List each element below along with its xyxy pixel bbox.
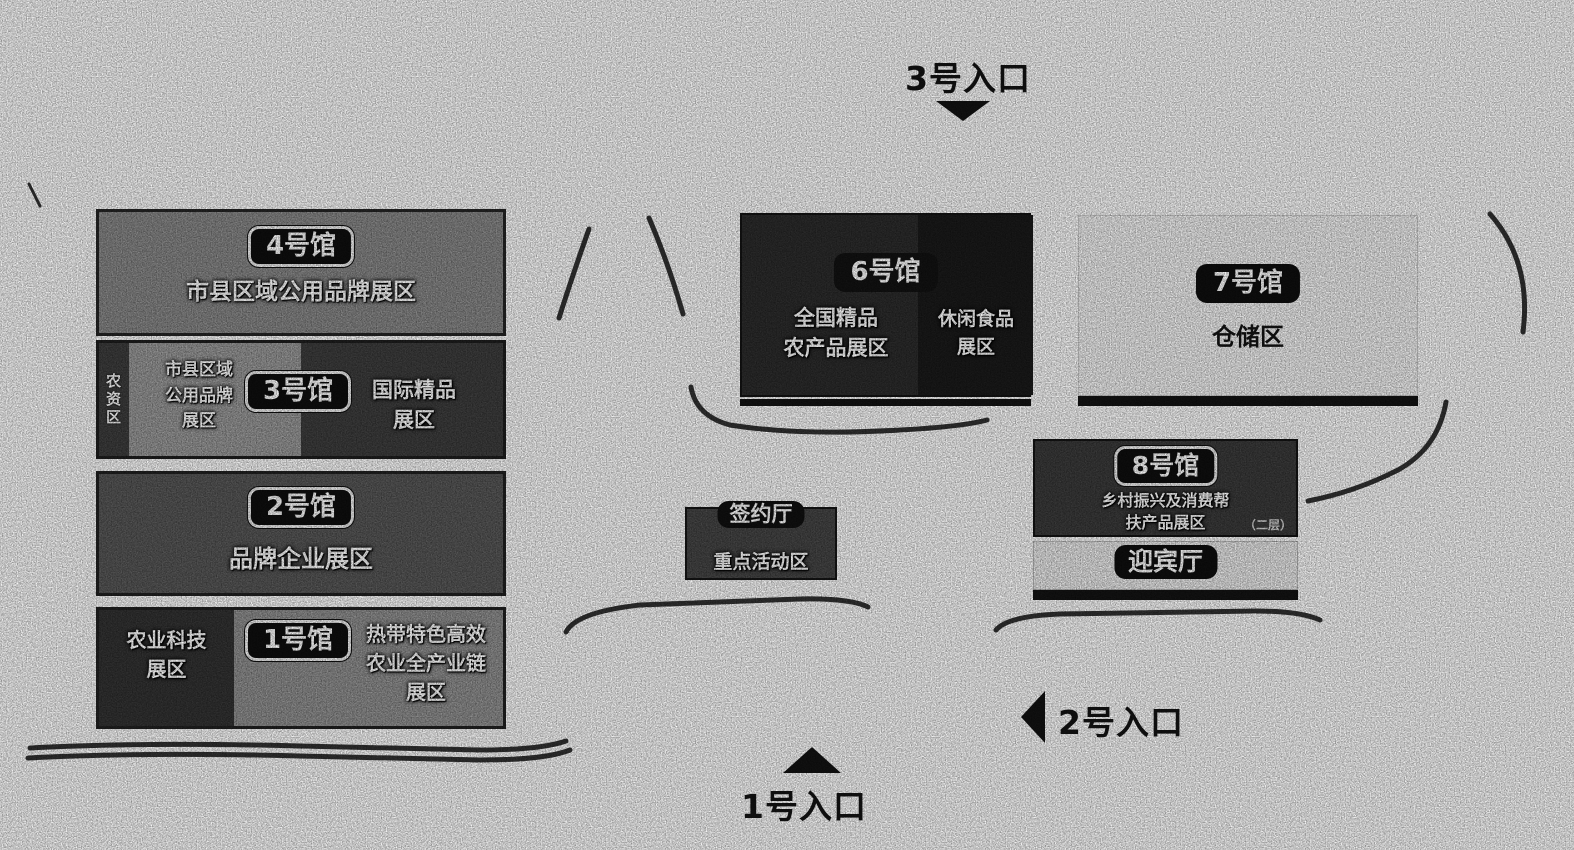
- hall-6-badge: 6号馆: [833, 253, 937, 292]
- entrance-2-label: 2号入口: [1058, 696, 1184, 744]
- road-tick-topleft: [29, 184, 40, 206]
- hall-1-badge: 1号馆: [245, 620, 351, 661]
- road-right-of-hall8: [1308, 402, 1446, 501]
- hall-6-right-zone-label: 休闲食品 展区: [922, 306, 1030, 361]
- road-bottom-2: [28, 750, 570, 760]
- welcome-hall-front-walkway: [1033, 590, 1298, 600]
- hall-4-badge: 4号馆: [248, 226, 354, 267]
- hall-6-right-zone: [918, 215, 1033, 395]
- road-bottom-1: [30, 741, 566, 750]
- road-under-welcome: [996, 611, 1320, 630]
- entrance-2-arrow-icon: [1021, 691, 1045, 743]
- signing-hall: 签约厅 重点活动区: [685, 507, 837, 580]
- road-under-signing: [566, 599, 868, 632]
- hall-6: 6号馆 全国精品 农产品展区 休闲食品 展区: [740, 213, 1031, 397]
- hall-2: 2号馆 品牌企业展区: [96, 471, 506, 596]
- entrance-1-label: 1号入口: [741, 780, 867, 828]
- road-far-right: [1490, 214, 1525, 332]
- hall-3-strip-label: 农资区: [103, 359, 124, 441]
- hall-2-badge: 2号馆: [248, 487, 354, 528]
- signing-hall-zone-label: 重点活动区: [687, 549, 835, 577]
- hall-7-front-walkway: [1078, 396, 1418, 406]
- hall-8-badge: 8号馆: [1114, 446, 1217, 486]
- hall-8-floor-note: （二层）: [1244, 516, 1292, 533]
- signing-hall-badge: 签约厅: [718, 501, 805, 528]
- hall-7-badge: 7号馆: [1196, 264, 1300, 303]
- hall-3-badge: 3号馆: [245, 371, 351, 412]
- hall-1: 农业科技 展区 1号馆 热带特色高效 农业全产业链 展区: [96, 607, 506, 729]
- hall-3: 农资区 市县区域 公用品牌 展区 3号馆 国际精品 展区: [96, 340, 506, 459]
- hall-8: 8号馆 乡村振兴及消费帮 扶产品展区 （二层）: [1033, 439, 1298, 537]
- hall-4-zone-label: 市县区域公用品牌展区: [99, 276, 503, 309]
- hall-7-zone-label: 仓储区: [1079, 320, 1417, 355]
- hall-3-right-zone-label: 国际精品 展区: [339, 375, 489, 436]
- road-curve-right: [649, 218, 683, 314]
- welcome-hall: 迎宾厅: [1033, 541, 1298, 590]
- venue-map: 3号入口 4号馆 市县区域公用品牌展区 农资区 市县区域 公用品牌 展区 3号馆…: [0, 0, 1574, 850]
- hall-7: 7号馆 仓储区: [1078, 215, 1418, 396]
- entrance-3-arrow-icon: [936, 101, 990, 121]
- hall-1-left-zone: 农业科技 展区: [99, 610, 234, 726]
- hall-6-front-walkway: [740, 399, 1031, 406]
- entrance-1-arrow-icon: [783, 747, 841, 773]
- hall-2-zone-label: 品牌企业展区: [99, 542, 503, 577]
- entrance-3-label: 3号入口: [905, 52, 1031, 100]
- road-curve-left: [559, 229, 589, 318]
- hall-6-left-zone-label: 全国精品 农产品展区: [756, 303, 916, 364]
- welcome-hall-badge: 迎宾厅: [1114, 545, 1217, 579]
- hall-1-right-zone-label: 热带特色高效 农业全产业链 展区: [351, 620, 501, 707]
- hall-4: 4号馆 市县区域公用品牌展区: [96, 209, 506, 336]
- hall-1-left-zone-label: 农业科技 展区: [99, 626, 234, 684]
